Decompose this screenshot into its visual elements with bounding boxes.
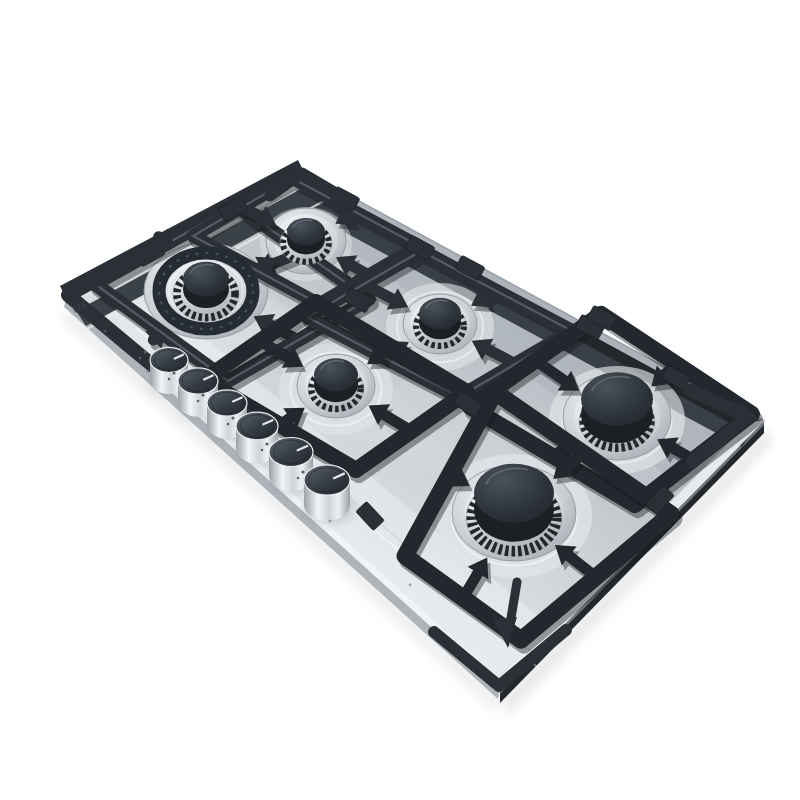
knob-print-dot xyxy=(172,371,175,374)
cap-top xyxy=(419,298,461,329)
grate-spear-bar xyxy=(511,582,517,618)
knob-print-dot xyxy=(265,442,268,445)
surface-dot xyxy=(103,329,106,332)
product-photo-stage xyxy=(0,0,800,800)
cap-top xyxy=(581,372,653,425)
surface-dot xyxy=(147,370,150,373)
cap-top xyxy=(287,218,325,246)
rapid-burner-bottom xyxy=(466,464,562,556)
knob-print-dot xyxy=(227,423,230,426)
grate-finger xyxy=(450,474,454,477)
knob-top xyxy=(269,437,313,466)
surface-dot xyxy=(409,584,412,587)
cap-top xyxy=(474,464,554,523)
knob-print-dot xyxy=(231,416,234,419)
grate-finger xyxy=(487,291,497,297)
grate-finger xyxy=(280,418,290,425)
knob-top xyxy=(178,368,218,394)
knob-top xyxy=(304,465,350,495)
grate-finger xyxy=(382,347,392,354)
cap-top xyxy=(314,358,358,391)
knob-top xyxy=(207,390,247,416)
surface-dot xyxy=(328,519,331,522)
grate-finger xyxy=(553,450,563,456)
knob-print-dot xyxy=(201,393,204,396)
rapid-burner-right xyxy=(579,372,655,451)
wok-burner xyxy=(159,253,253,329)
cap-top xyxy=(183,262,229,297)
knob-top xyxy=(236,412,278,440)
knob-print-dot xyxy=(261,449,264,452)
knob-print-dot xyxy=(197,400,200,403)
knob-top xyxy=(150,347,188,372)
gas-cooktop-photo xyxy=(0,0,800,800)
knob-print-dot xyxy=(168,378,171,381)
knob-print-dot xyxy=(139,357,142,360)
knob-print-dot xyxy=(301,470,304,473)
knob-print-dot xyxy=(143,350,146,353)
knob-print-dot xyxy=(297,477,300,480)
